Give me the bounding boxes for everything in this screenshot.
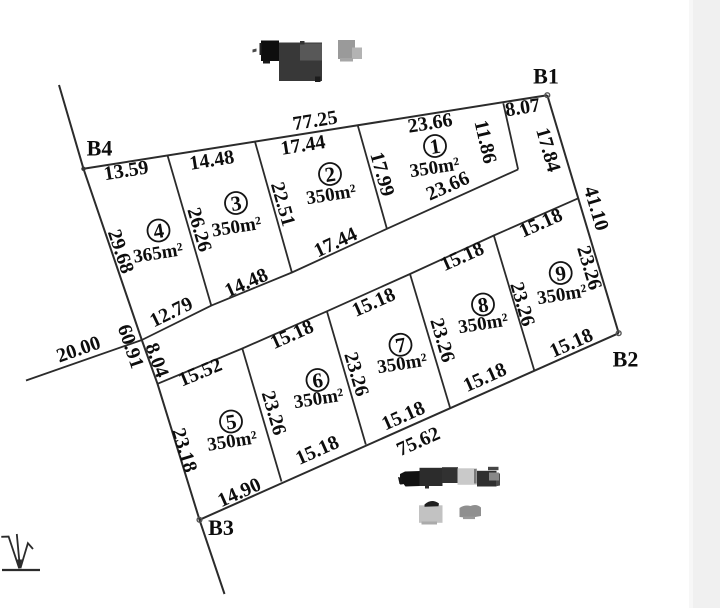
svg-text:B3: B3 (208, 515, 234, 540)
svg-text:B2: B2 (613, 346, 639, 371)
svg-text:B4: B4 (87, 135, 113, 160)
svg-text:B1: B1 (533, 63, 559, 88)
